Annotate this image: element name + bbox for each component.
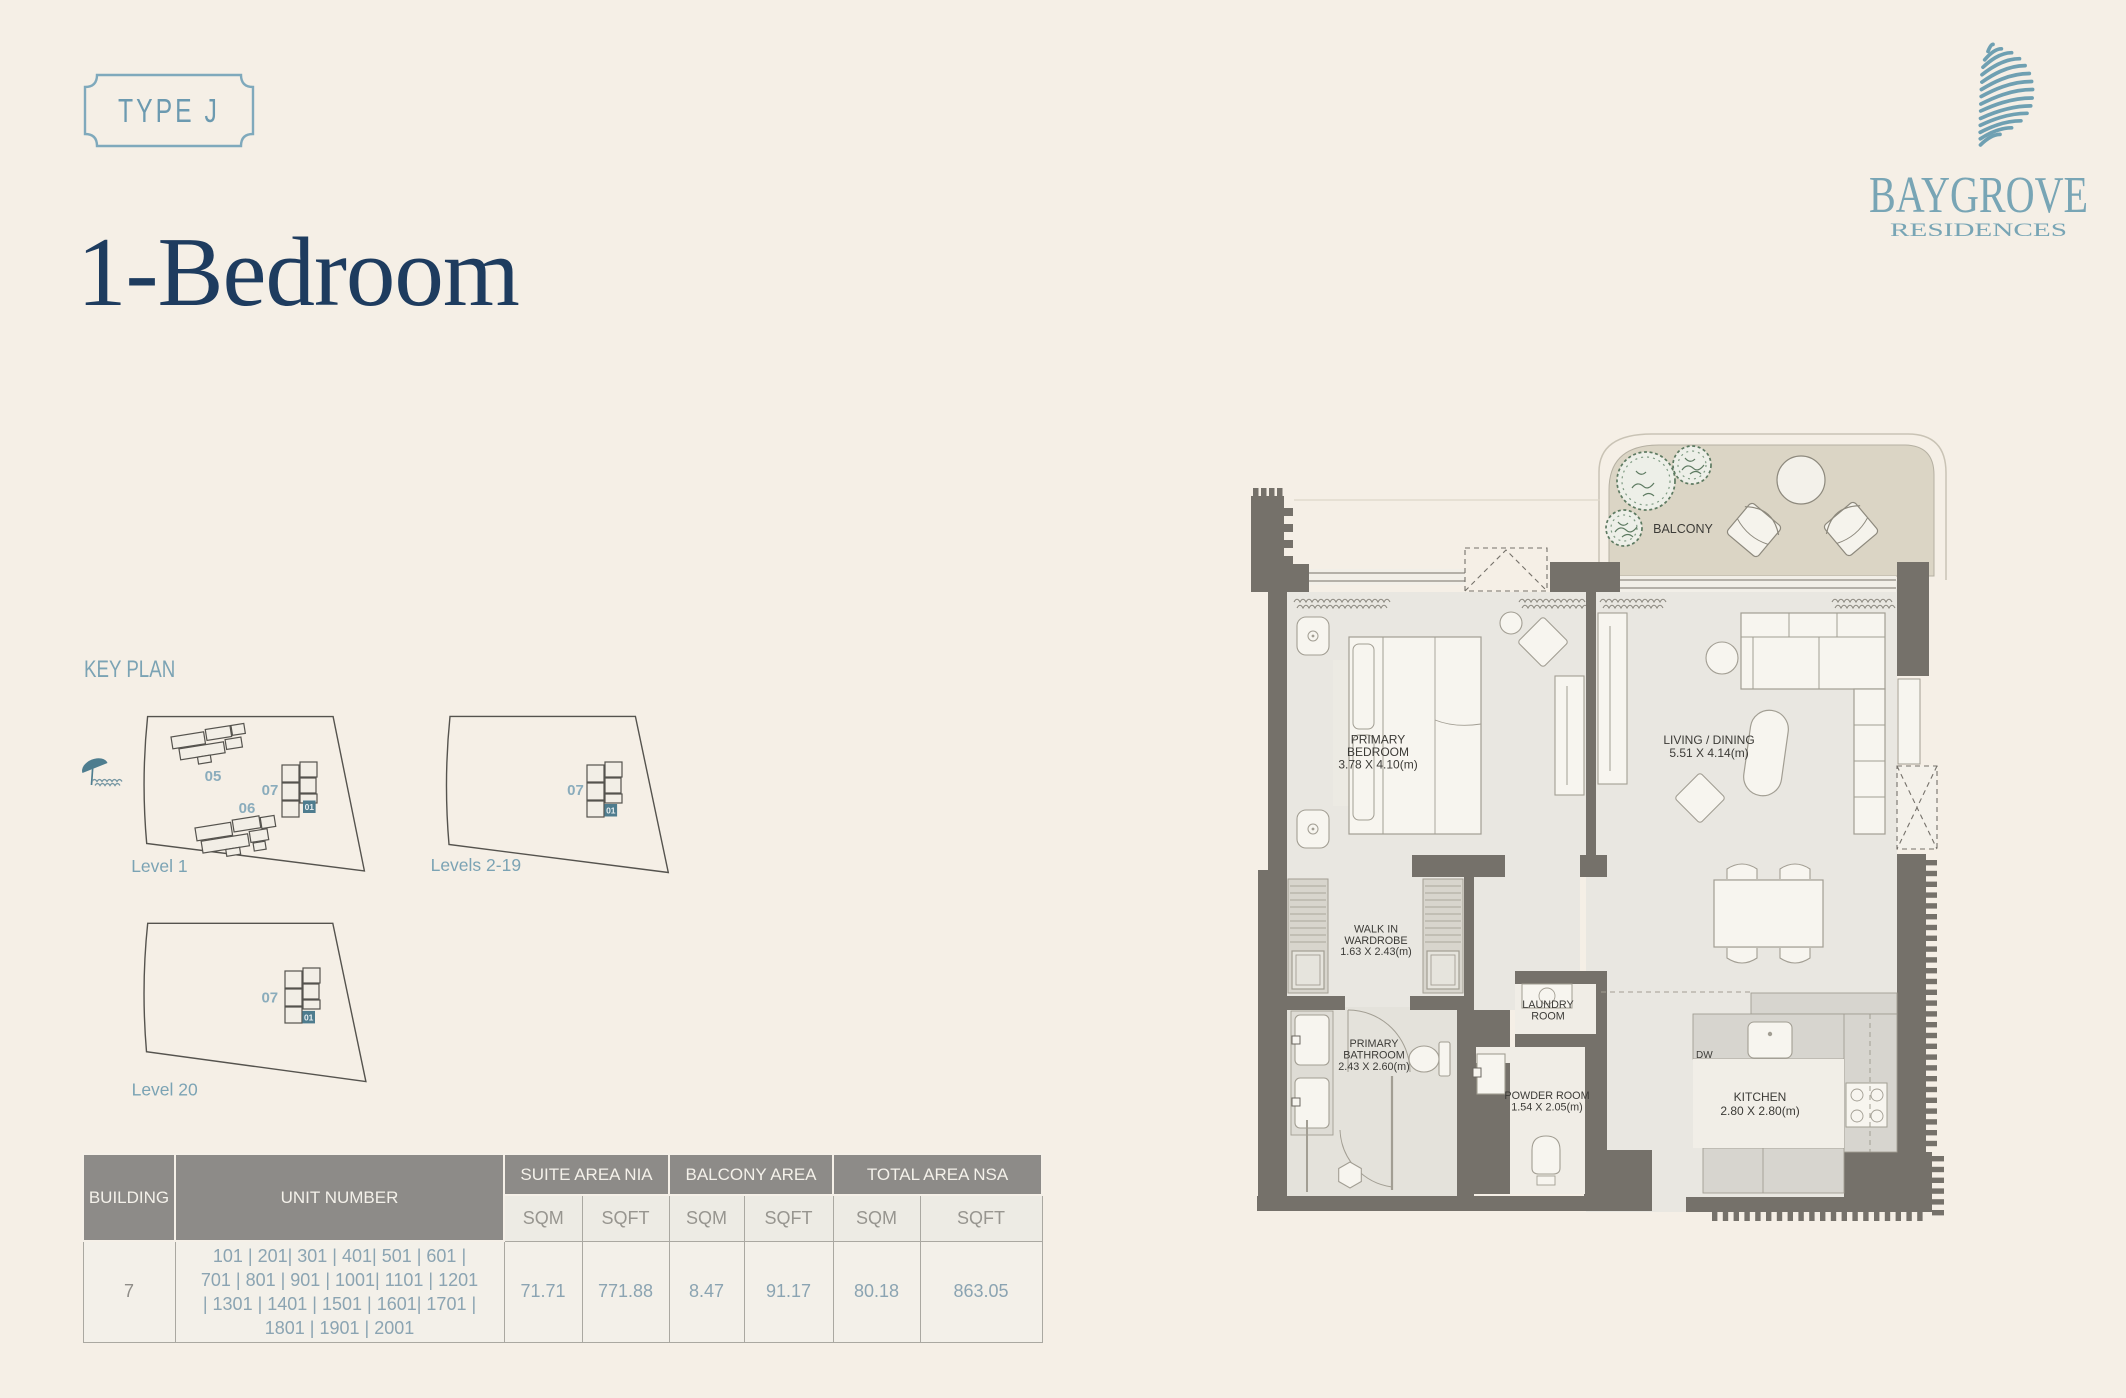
svg-text:LIVING / DINING: LIVING / DINING <box>1663 733 1754 747</box>
svg-text:WALK IN: WALK IN <box>1354 924 1398 936</box>
svg-text:BALCONY: BALCONY <box>1653 522 1713 536</box>
svg-text:ROOM: ROOM <box>1531 1011 1565 1023</box>
svg-text:LAUNDRY: LAUNDRY <box>1522 999 1573 1011</box>
svg-text:1.54 X 2.05(m): 1.54 X 2.05(m) <box>1511 1102 1582 1114</box>
svg-text:01: 01 <box>305 802 315 812</box>
svg-text:Level 1: Level 1 <box>131 856 187 876</box>
svg-text:DW: DW <box>1696 1050 1713 1061</box>
svg-text:07: 07 <box>567 782 584 799</box>
svg-text:07: 07 <box>262 782 279 799</box>
svg-text:BATHROOM: BATHROOM <box>1343 1050 1405 1062</box>
svg-text:3.78 X 4.10(m): 3.78 X 4.10(m) <box>1338 758 1417 772</box>
svg-text:RESIDENCES: RESIDENCES <box>1890 220 2067 241</box>
svg-text:KITCHEN: KITCHEN <box>1734 1090 1787 1104</box>
svg-text:BAYGROVE: BAYGROVE <box>1869 167 2088 224</box>
svg-text:WARDROBE: WARDROBE <box>1344 935 1407 947</box>
svg-text:2.80 X 2.80(m): 2.80 X 2.80(m) <box>1720 1104 1799 1118</box>
svg-text:05: 05 <box>205 768 222 785</box>
svg-text:2.43 X 2.60(m): 2.43 X 2.60(m) <box>1338 1061 1409 1073</box>
svg-text:1.63 X 2.43(m): 1.63 X 2.43(m) <box>1340 946 1411 958</box>
svg-text:Level 20: Level 20 <box>132 1080 198 1100</box>
svg-text:06: 06 <box>239 800 256 817</box>
svg-text:POWDER ROOM: POWDER ROOM <box>1504 1090 1589 1102</box>
svg-text:01: 01 <box>606 806 616 816</box>
svg-text:5.51 X 4.14(m): 5.51 X 4.14(m) <box>1669 746 1748 760</box>
svg-text:07: 07 <box>261 990 278 1007</box>
svg-text:01: 01 <box>304 1012 314 1022</box>
svg-text:PRIMARY: PRIMARY <box>1350 1038 1399 1050</box>
svg-text:Levels 2-19: Levels 2-19 <box>431 855 521 875</box>
